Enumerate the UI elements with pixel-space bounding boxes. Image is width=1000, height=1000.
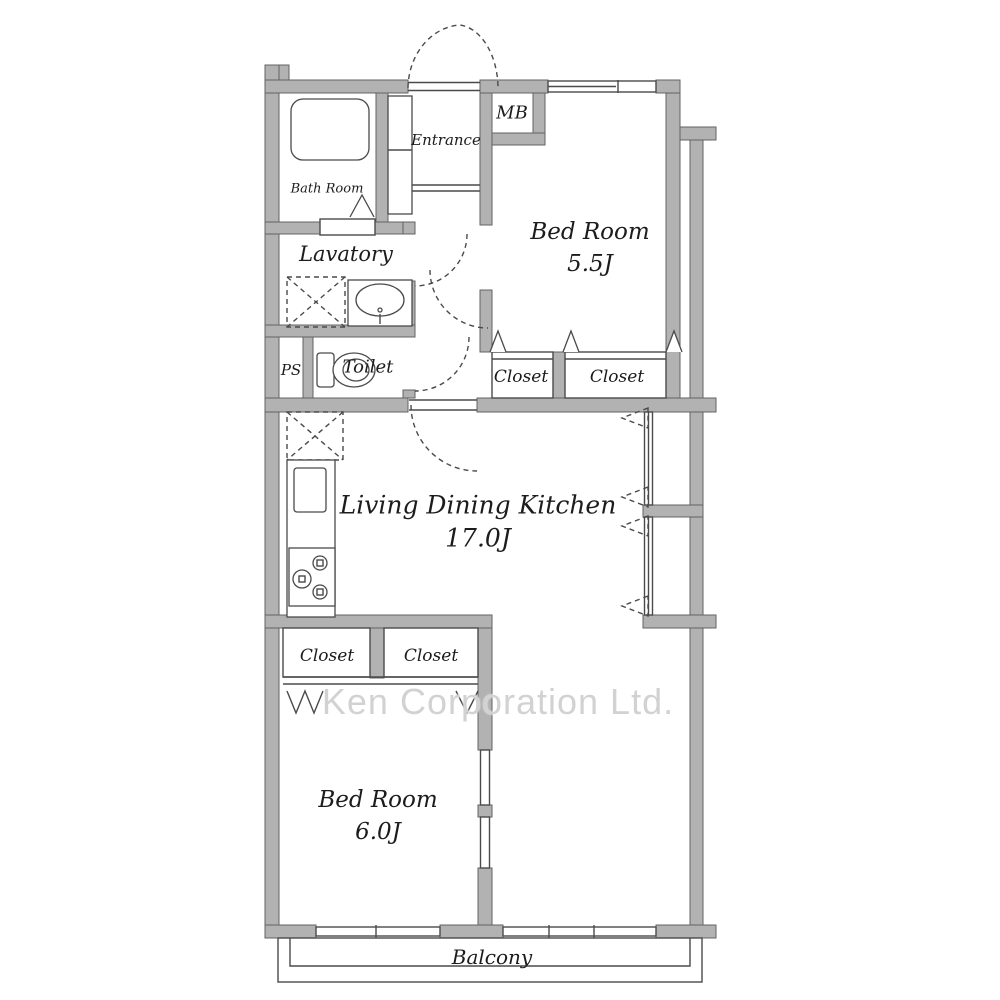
balcony-label: Balcony (452, 945, 532, 969)
wall-top-2 (480, 80, 548, 93)
kitchen-fixtures (287, 412, 343, 617)
toilet-tank (317, 353, 334, 387)
wall-bedroom1-west-b (480, 290, 492, 352)
wall-right-stub-mid (643, 505, 703, 517)
bath-room-label: Bath Room (291, 182, 364, 197)
watermark-text: Ken Corporation Ltd. (322, 681, 674, 723)
entrance-door-arc (408, 25, 498, 88)
closet-b2-left-label: Closet (300, 646, 354, 666)
ps-label: PS (281, 361, 301, 379)
wall-topright-stub (680, 127, 716, 140)
mb-label: MB (496, 103, 528, 124)
bedroom2-size-label: 6.0J (355, 819, 401, 845)
lavatory-label: Lavatory (299, 242, 393, 266)
stove-burner (293, 570, 311, 588)
wall-partition-c (478, 868, 492, 925)
bedroom1-door-arc (430, 270, 488, 328)
wall-bottom-1 (265, 925, 316, 938)
wall-bottom-2 (440, 925, 503, 938)
kitchen-sink-icon (294, 468, 326, 512)
lavatory-door-arc (415, 234, 467, 286)
toilet-label: Toilet (343, 357, 394, 378)
bath-fixtures (291, 99, 375, 235)
wall-bottom-3 (656, 925, 716, 938)
bathtub-icon (291, 99, 369, 160)
entrance-label: Entrance (411, 131, 481, 149)
bath-folding-door-mark (350, 195, 374, 217)
bath-door-sill (320, 219, 375, 235)
wall-closet-b1-divider (553, 352, 565, 398)
stove-burner (313, 556, 327, 570)
window-bottom-ldk (503, 927, 656, 936)
wall-bath-right (376, 93, 388, 222)
floorplan-image: Bath Room Entrance MB Bed Room 5.5J Lava… (0, 0, 1000, 1000)
wall-right-stub-low (643, 615, 716, 628)
wall-closet-b2-divider (370, 628, 384, 678)
wall-mb-right (533, 93, 545, 133)
toilet-door-arc (415, 337, 469, 391)
wall-top-1 (265, 80, 408, 93)
ldk-label: Living Dining Kitchen (340, 491, 617, 520)
wall-hall-west-c (403, 390, 415, 398)
sink-drain (378, 308, 382, 312)
bedroom1-label: Bed Room (530, 219, 649, 245)
shoe-cabinet (388, 96, 412, 214)
wall-mid-left (265, 398, 408, 412)
wall-bedroom1-west-a (480, 93, 492, 225)
window-bottom-bedroom2 (316, 927, 440, 936)
window-partition-lower (481, 817, 490, 868)
wall-top-3 (656, 80, 680, 93)
closet-b1-right-label: Closet (590, 367, 644, 387)
wall-mid-right (477, 398, 716, 412)
bedroom2-label: Bed Room (318, 787, 437, 813)
wall-ps-divider (303, 337, 313, 398)
window-partition-upper (481, 750, 490, 805)
closet-b1-left-label: Closet (494, 367, 548, 387)
stove-burner (313, 585, 327, 599)
closet-b2-right-label: Closet (404, 646, 458, 666)
ldk-size-label: 17.0J (445, 524, 511, 553)
wall-partition-b (478, 805, 492, 817)
wall-right-inner (666, 93, 680, 412)
closet-fold-mark (287, 691, 323, 713)
closet-door-mark (563, 331, 579, 352)
ldk-door-arc (411, 405, 477, 471)
entrance-fixtures (388, 96, 480, 214)
wall-right-outer (690, 140, 703, 938)
wall-left (265, 65, 279, 938)
bedroom1-size-label: 5.5J (567, 251, 613, 277)
wall-topleft-notch (279, 65, 289, 81)
wall-hall-west-a (403, 222, 415, 234)
